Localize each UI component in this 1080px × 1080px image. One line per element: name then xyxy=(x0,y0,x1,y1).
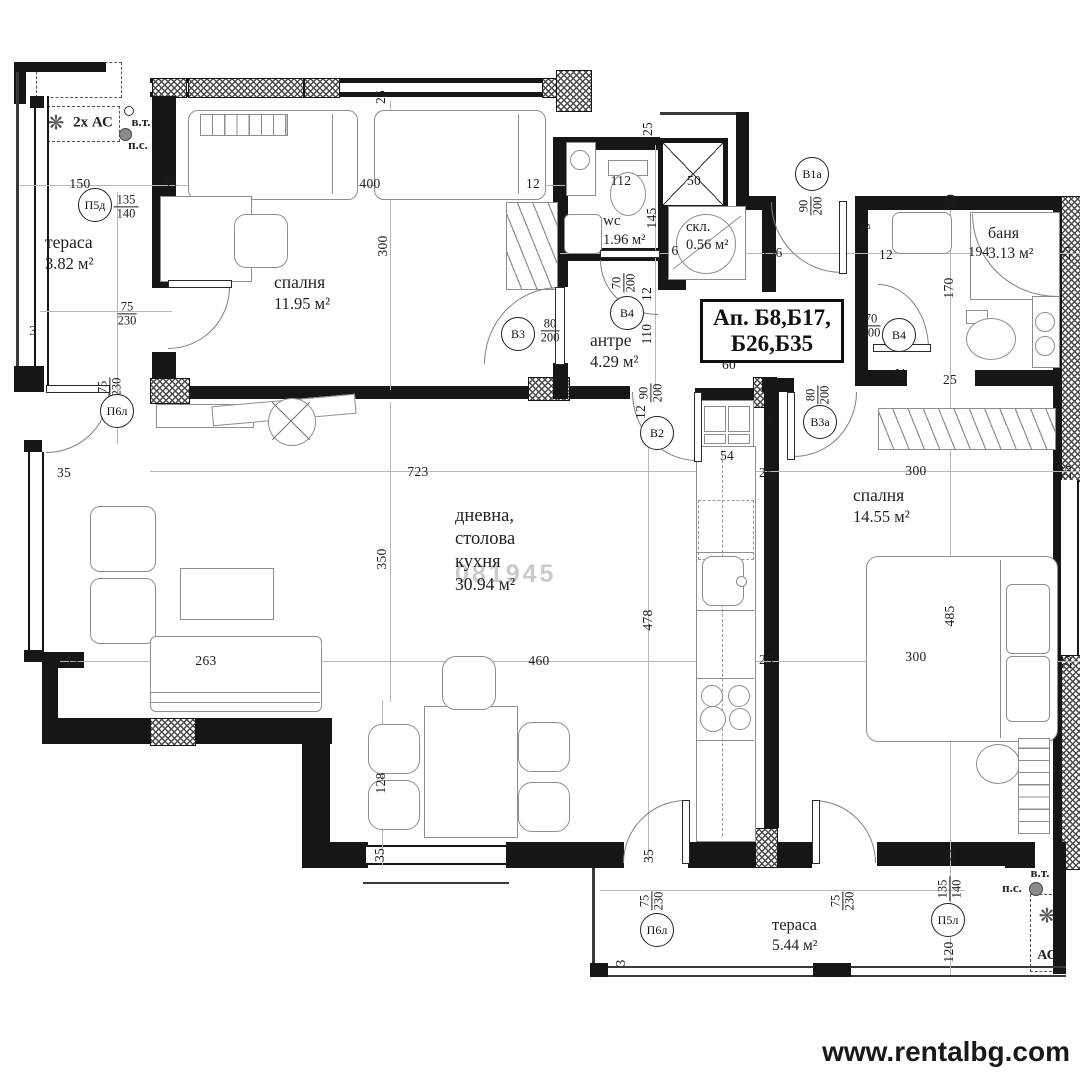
fraction-denominator: 140 xyxy=(114,208,139,221)
furniture-line xyxy=(696,740,754,741)
hatched-wall xyxy=(150,378,190,404)
wall xyxy=(764,392,779,828)
fraction-denominator: 200 xyxy=(859,327,884,340)
dimension-label: 25 xyxy=(759,465,773,481)
dimension-label: 128 xyxy=(373,772,389,793)
furniture-line xyxy=(696,552,754,553)
furniture xyxy=(518,782,570,832)
furniture xyxy=(698,500,754,560)
door-leaf xyxy=(694,392,702,462)
dimension-fraction: 135140 xyxy=(114,193,139,220)
dimension-label: 723 xyxy=(407,464,428,480)
furniture xyxy=(700,706,726,732)
door-leaf xyxy=(787,392,795,460)
dimension-fraction: 90200 xyxy=(797,194,824,219)
fraction-denominator: 200 xyxy=(538,332,563,345)
furniture-line xyxy=(332,114,333,194)
dimension-label: 35 xyxy=(641,849,657,863)
fraction-numerator: 80 xyxy=(804,386,818,405)
door-swing-arc xyxy=(46,392,109,453)
furniture xyxy=(90,506,156,572)
dimension-label: 12 xyxy=(633,405,649,419)
furniture-line xyxy=(518,114,519,194)
wall xyxy=(660,112,740,115)
door-marker-В3: В3 xyxy=(501,317,535,351)
wall xyxy=(553,363,568,399)
door-leaf xyxy=(839,201,847,274)
wall xyxy=(24,650,42,662)
wall xyxy=(590,963,608,977)
hatched-wall xyxy=(1061,196,1080,482)
fraction-denominator: 200 xyxy=(625,271,638,296)
furniture-line xyxy=(1000,560,1001,738)
furniture xyxy=(442,656,496,710)
door-swing-arc xyxy=(813,800,876,863)
fraction-numerator: 90 xyxy=(797,197,811,216)
furniture xyxy=(1035,312,1055,332)
dimension-label: 3 xyxy=(29,323,36,339)
furniture xyxy=(728,685,750,707)
dimension-fraction: 70200 xyxy=(610,271,637,296)
hatched-wall xyxy=(753,828,778,868)
fraction-numerator: 75 xyxy=(96,378,110,397)
door-marker-В3а: В3а xyxy=(803,405,837,439)
furniture xyxy=(1018,738,1050,834)
fraction-denominator: 230 xyxy=(653,889,666,914)
dimension-label: 120 xyxy=(941,941,957,962)
furniture-line xyxy=(696,678,754,679)
door-marker-П5л: П5л xyxy=(931,903,965,937)
dimension-label: 485 xyxy=(942,605,958,626)
hatched-wall xyxy=(556,70,592,112)
dimension-fraction: 80200 xyxy=(538,317,563,344)
dimension-label: 300 xyxy=(905,649,926,665)
dimension-label: 460 xyxy=(528,653,549,669)
dimension-fraction: 80200 xyxy=(804,383,831,408)
dimension-label: 25 xyxy=(1059,465,1075,479)
wall xyxy=(24,440,42,452)
furniture xyxy=(878,408,1056,450)
dimension-label: 12 xyxy=(879,247,893,263)
fraction-denominator: 230 xyxy=(115,315,140,328)
furniture xyxy=(728,406,750,432)
dimension-label: 25 xyxy=(943,372,957,388)
dimension-label: 35 xyxy=(943,849,959,863)
furniture xyxy=(564,214,602,254)
dimension-label: 20 xyxy=(943,194,959,208)
room-banya: баня 3.13 м² xyxy=(988,224,1033,263)
dimension-line xyxy=(40,311,172,312)
dimension-label: 112 xyxy=(611,173,632,189)
dimension-label: 12 xyxy=(526,176,540,192)
furniture-line xyxy=(150,692,320,693)
dimension-fraction: 75230 xyxy=(115,300,140,327)
fraction-numerator: 70 xyxy=(862,312,881,326)
furniture xyxy=(976,744,1020,784)
door-marker-В2: В2 xyxy=(640,416,674,450)
dimension-label: 50 xyxy=(687,173,701,189)
wall xyxy=(430,386,528,399)
room-dnevna: дневна, столова кухня 30.94 м² xyxy=(455,505,515,596)
dimension-label: 6 xyxy=(766,414,773,430)
wall xyxy=(363,882,509,884)
hatched-wall xyxy=(150,718,196,746)
fan-icon: ❋ xyxy=(48,111,65,136)
dimension-label: 145 xyxy=(644,207,660,228)
dimension-fraction: 135140 xyxy=(936,877,963,902)
ac-label-top-left: 2х АС xyxy=(73,115,113,132)
dimension-label: 170 xyxy=(941,277,957,298)
dimension-label: 478 xyxy=(640,609,656,630)
door-marker-В4: В4 xyxy=(610,296,644,330)
fraction-denominator: 200 xyxy=(652,381,665,406)
fraction-numerator: 70 xyxy=(610,274,624,293)
cross-mark xyxy=(272,402,310,440)
furniture xyxy=(736,576,747,587)
dimension-label: 12 xyxy=(639,287,655,301)
room-spalnya2: спалня 14.55 м² xyxy=(853,485,910,528)
furniture xyxy=(506,202,558,290)
fraction-numerator: 135 xyxy=(114,193,139,207)
dimension-fraction: 75230 xyxy=(638,889,665,914)
furniture xyxy=(728,434,750,444)
wall xyxy=(302,842,368,868)
wall xyxy=(1053,842,1066,974)
wall xyxy=(855,210,868,374)
door-leaf xyxy=(682,800,690,864)
dimension-label: 25 xyxy=(759,652,773,668)
ps-label: п.с. xyxy=(128,137,148,153)
apartment-number-box: Ап. Б8,Б17, Б26,Б35 xyxy=(700,299,844,363)
furniture xyxy=(701,685,723,707)
fraction-numerator: 80 xyxy=(541,317,560,331)
furniture xyxy=(729,708,751,730)
door-leaf xyxy=(168,280,232,288)
door-swing-arc xyxy=(168,287,230,349)
dimension-line xyxy=(390,402,391,702)
wall xyxy=(14,366,44,392)
wall xyxy=(568,386,630,399)
furniture xyxy=(374,110,546,200)
wall xyxy=(14,62,106,72)
dimension-fraction: 70200 xyxy=(859,312,884,339)
furniture xyxy=(704,434,726,444)
dimension-label: 110 xyxy=(639,324,655,345)
furniture xyxy=(200,114,288,136)
dimension-label: 25 xyxy=(65,654,79,670)
furniture xyxy=(90,578,156,644)
vt-label: в.т. xyxy=(132,114,151,130)
wall xyxy=(28,452,44,652)
dimension-line xyxy=(150,471,1080,472)
dimension-label: 25 xyxy=(1059,655,1075,669)
dimension-label: 25 xyxy=(1058,246,1074,260)
furniture xyxy=(424,706,518,838)
furniture xyxy=(518,722,570,772)
furniture xyxy=(180,568,274,620)
dimension-label: 263 xyxy=(195,653,216,669)
hatched-wall xyxy=(1061,655,1080,870)
room-skl: скл. 0.56 м² xyxy=(686,218,729,254)
room-wc: wc 1.96 м² xyxy=(603,212,646,249)
watermark-site: www.rentalbg.com xyxy=(822,1036,1070,1068)
dimension-label: 194 xyxy=(968,244,989,260)
furniture xyxy=(570,150,590,170)
dimension-label: 196 xyxy=(761,245,782,261)
hatched-wall xyxy=(304,78,340,98)
dimension-label: 54 xyxy=(720,448,734,464)
dimension-label: 3 xyxy=(613,959,629,966)
wall xyxy=(1059,480,1079,655)
wall xyxy=(813,963,851,977)
ps-label: п.с. xyxy=(1002,880,1022,896)
fraction-numerator: 75 xyxy=(638,892,652,911)
furniture xyxy=(966,318,1016,360)
dimension-fraction: 90200 xyxy=(637,381,664,406)
dimension-label: 35 xyxy=(57,465,71,481)
dimension-label: 6 xyxy=(671,243,678,259)
furniture xyxy=(892,212,952,254)
room-antre: антре 4.29 м² xyxy=(590,330,638,373)
door-marker-П6л: П6л xyxy=(640,913,674,947)
room-name: тераса xyxy=(45,232,93,254)
dimension-label: 35 xyxy=(372,848,388,862)
wall xyxy=(762,378,794,392)
fraction-numerator: 75 xyxy=(829,892,843,911)
wall xyxy=(1005,842,1035,868)
dimension-label: 25 xyxy=(373,90,389,104)
dimension-label: 300 xyxy=(905,463,926,479)
wall xyxy=(30,96,44,108)
fraction-denominator: 230 xyxy=(844,889,857,914)
door-leaf xyxy=(600,250,660,258)
dimension-fraction: 75230 xyxy=(829,889,856,914)
fraction-denominator: 200 xyxy=(819,383,832,408)
dimension-label: 25 xyxy=(640,122,656,136)
dimension-label: 350 xyxy=(374,548,390,569)
room-spalnya1: спалня 11.95 м² xyxy=(274,272,330,315)
wall xyxy=(16,72,19,392)
fraction-numerator: 135 xyxy=(936,877,950,902)
wall xyxy=(688,842,756,868)
furniture xyxy=(1035,336,1055,356)
door-marker-П5д: П5д xyxy=(78,188,112,222)
wall xyxy=(506,842,624,868)
ps-icon xyxy=(1029,882,1043,896)
room-terasa1: тераса 3.82 м² xyxy=(45,232,93,275)
furniture xyxy=(704,406,726,432)
room-area: 3.82 м² xyxy=(45,254,93,275)
dimension-label: 300 xyxy=(375,235,391,256)
door-marker-В4: В4 xyxy=(882,318,916,352)
furniture-line xyxy=(150,702,320,703)
wall xyxy=(877,842,1007,866)
room-terasa2: тераса 5.44 м² xyxy=(772,915,817,955)
floor-plan-canvas: тераса 3.82 м² спалня 11.95 м² wc 1.96 м… xyxy=(0,0,1080,1080)
door-marker-П6л: П6л xyxy=(100,394,134,428)
furniture xyxy=(368,724,420,774)
fraction-denominator: 140 xyxy=(951,877,964,902)
fraction-numerator: 75 xyxy=(118,300,137,314)
fraction-numerator: 90 xyxy=(637,384,651,403)
wall xyxy=(592,868,595,976)
dimension-label: 12 xyxy=(892,368,908,382)
furniture-line xyxy=(696,610,754,611)
hatched-wall xyxy=(188,78,304,98)
dimension-label: 35 xyxy=(163,176,177,192)
door-marker-В1а: В1а xyxy=(795,157,829,191)
furniture-dash-line xyxy=(722,450,724,836)
dimension-label: 9 xyxy=(858,222,874,229)
hatched-wall xyxy=(152,78,187,98)
fraction-denominator: 200 xyxy=(812,194,825,219)
dimension-label: 400 xyxy=(359,176,380,192)
wall xyxy=(778,842,812,868)
furniture xyxy=(150,636,322,712)
furniture xyxy=(1032,296,1060,368)
door-leaf xyxy=(812,800,820,864)
furniture xyxy=(1006,584,1050,654)
dimension-line xyxy=(648,440,649,862)
furniture xyxy=(234,214,288,268)
furniture xyxy=(1006,656,1050,722)
wall xyxy=(42,652,58,722)
